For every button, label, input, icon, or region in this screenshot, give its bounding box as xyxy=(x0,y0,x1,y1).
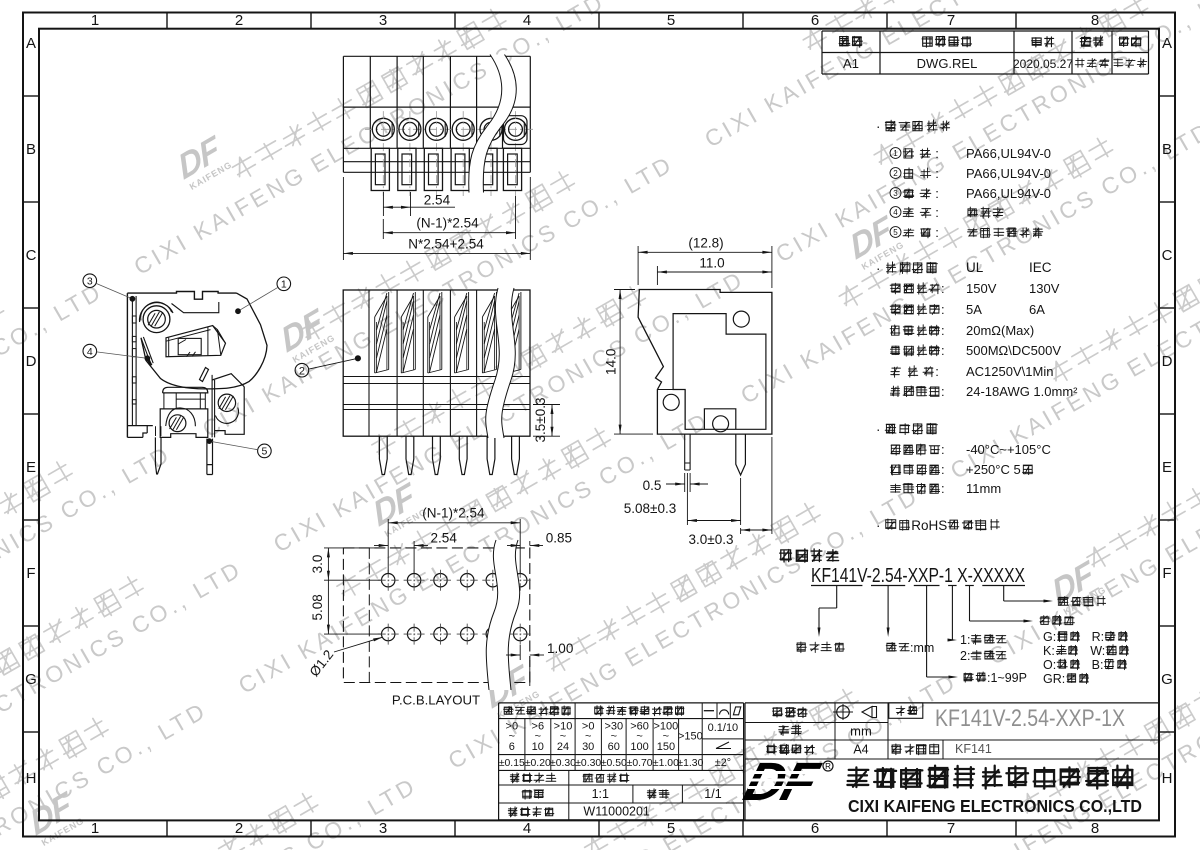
svg-text:(N-1)*2.54: (N-1)*2.54 xyxy=(416,216,479,231)
svg-text:3: 3 xyxy=(87,276,93,288)
svg-text:KF141V-2.54-XXP-1 X-XXXXX: KF141V-2.54-XXP-1 X-XXXXX xyxy=(811,565,1025,587)
svg-text:1/1: 1/1 xyxy=(704,787,721,801)
svg-text:F: F xyxy=(1162,565,1171,582)
svg-text:5: 5 xyxy=(261,446,267,458)
svg-text:B: B xyxy=(26,141,36,158)
svg-text:±1.00: ±1.00 xyxy=(653,758,679,769)
svg-text:A: A xyxy=(26,35,36,52)
svg-text:mm: mm xyxy=(850,724,872,739)
svg-text:P.C.B.LAYOUT: P.C.B.LAYOUT xyxy=(392,693,480,708)
svg-text:1:1: 1:1 xyxy=(592,787,609,801)
svg-text:4: 4 xyxy=(87,346,93,358)
svg-text:±0.15: ±0.15 xyxy=(499,758,525,769)
svg-text:60: 60 xyxy=(608,741,620,753)
svg-text:1: 1 xyxy=(281,279,287,291)
svg-text:8: 8 xyxy=(1091,820,1099,837)
svg-text:N*2.54+2.54: N*2.54+2.54 xyxy=(408,237,484,252)
svg-text:5: 5 xyxy=(893,228,898,237)
svg-text:2020.05.27: 2020.05.27 xyxy=(1013,57,1073,71)
svg-text:F: F xyxy=(26,565,35,582)
svg-text:7: 7 xyxy=(947,820,955,837)
svg-text:±0.20: ±0.20 xyxy=(525,758,551,769)
svg-text:Ø1.2: Ø1.2 xyxy=(307,647,337,679)
svg-text:H: H xyxy=(1162,770,1173,787)
svg-text:0.5: 0.5 xyxy=(643,478,662,493)
svg-text:5.08±0.3: 5.08±0.3 xyxy=(624,501,676,516)
svg-text:1: 1 xyxy=(893,149,898,158)
svg-text:11.0: 11.0 xyxy=(699,256,724,271)
svg-text:2: 2 xyxy=(893,169,898,178)
svg-text:±2°: ±2° xyxy=(715,757,731,769)
svg-text:2: 2 xyxy=(299,366,305,378)
svg-text:1: 1 xyxy=(91,12,99,29)
svg-text:D: D xyxy=(1162,353,1173,370)
svg-text:±0.30: ±0.30 xyxy=(575,758,601,769)
svg-text:(N-1)*2.54: (N-1)*2.54 xyxy=(422,505,485,520)
svg-text:KF141V-2.54-XXP-1X: KF141V-2.54-XXP-1X xyxy=(935,705,1125,732)
svg-text:6: 6 xyxy=(811,820,819,837)
svg-text:3: 3 xyxy=(893,189,898,198)
svg-text:5: 5 xyxy=(667,12,675,29)
svg-text:3: 3 xyxy=(379,820,387,837)
svg-text:24: 24 xyxy=(557,741,569,753)
svg-text:CIXI KAIFENG ELECTRONICS CO.,L: CIXI KAIFENG ELECTRONICS CO.,LTD xyxy=(848,796,1142,816)
svg-text:C: C xyxy=(26,247,37,264)
svg-text:3.0±0.3: 3.0±0.3 xyxy=(689,532,734,547)
svg-text:B: B xyxy=(1162,141,1172,158)
svg-text:W11000201: W11000201 xyxy=(583,805,650,819)
svg-text:1.00: 1.00 xyxy=(547,641,573,656)
svg-text:A1: A1 xyxy=(843,56,859,71)
svg-text:3: 3 xyxy=(379,12,387,29)
svg-text:±0.30: ±0.30 xyxy=(550,758,576,769)
svg-text:2.54: 2.54 xyxy=(431,530,458,545)
svg-text:5: 5 xyxy=(667,820,675,837)
svg-text:100: 100 xyxy=(630,741,648,753)
svg-text:G: G xyxy=(25,671,37,688)
svg-text:H: H xyxy=(26,770,37,787)
svg-text:A4: A4 xyxy=(853,743,868,757)
svg-text:A: A xyxy=(1162,35,1172,52)
svg-text:4: 4 xyxy=(893,208,898,217)
svg-text:±0.70: ±0.70 xyxy=(627,758,653,769)
svg-text:>150: >150 xyxy=(678,731,703,743)
svg-text:150: 150 xyxy=(657,741,675,753)
svg-text:2: 2 xyxy=(235,12,243,29)
svg-text:10: 10 xyxy=(532,741,544,753)
svg-text:3.5±0.3: 3.5±0.3 xyxy=(533,398,548,443)
svg-text:3.0: 3.0 xyxy=(310,555,325,574)
svg-text:±0.50: ±0.50 xyxy=(601,758,627,769)
svg-text:7: 7 xyxy=(947,12,955,29)
svg-text:E: E xyxy=(26,459,36,476)
svg-text:2.54: 2.54 xyxy=(424,193,451,208)
svg-text:30: 30 xyxy=(582,741,594,753)
svg-text:4: 4 xyxy=(523,820,531,837)
svg-text:E: E xyxy=(1162,459,1172,476)
svg-text:±1.30: ±1.30 xyxy=(677,758,703,769)
svg-text:KF141: KF141 xyxy=(955,742,992,756)
svg-text:6: 6 xyxy=(509,741,515,753)
svg-text:DWG.REL: DWG.REL xyxy=(917,56,978,71)
svg-text:0.1/10: 0.1/10 xyxy=(708,722,739,734)
svg-text:R: R xyxy=(825,762,831,771)
svg-text:6: 6 xyxy=(811,12,819,29)
svg-text:2: 2 xyxy=(235,820,243,837)
svg-text:8: 8 xyxy=(1091,12,1099,29)
svg-text:1: 1 xyxy=(91,820,99,837)
svg-text:4: 4 xyxy=(523,12,531,29)
svg-text:C: C xyxy=(1162,247,1173,264)
svg-text:G: G xyxy=(1161,671,1173,688)
svg-text:0.85: 0.85 xyxy=(546,530,572,545)
svg-text:14.0: 14.0 xyxy=(604,349,619,375)
svg-text:5.08: 5.08 xyxy=(310,594,325,620)
svg-text:D: D xyxy=(26,353,37,370)
svg-text:(12.8): (12.8) xyxy=(688,236,723,251)
